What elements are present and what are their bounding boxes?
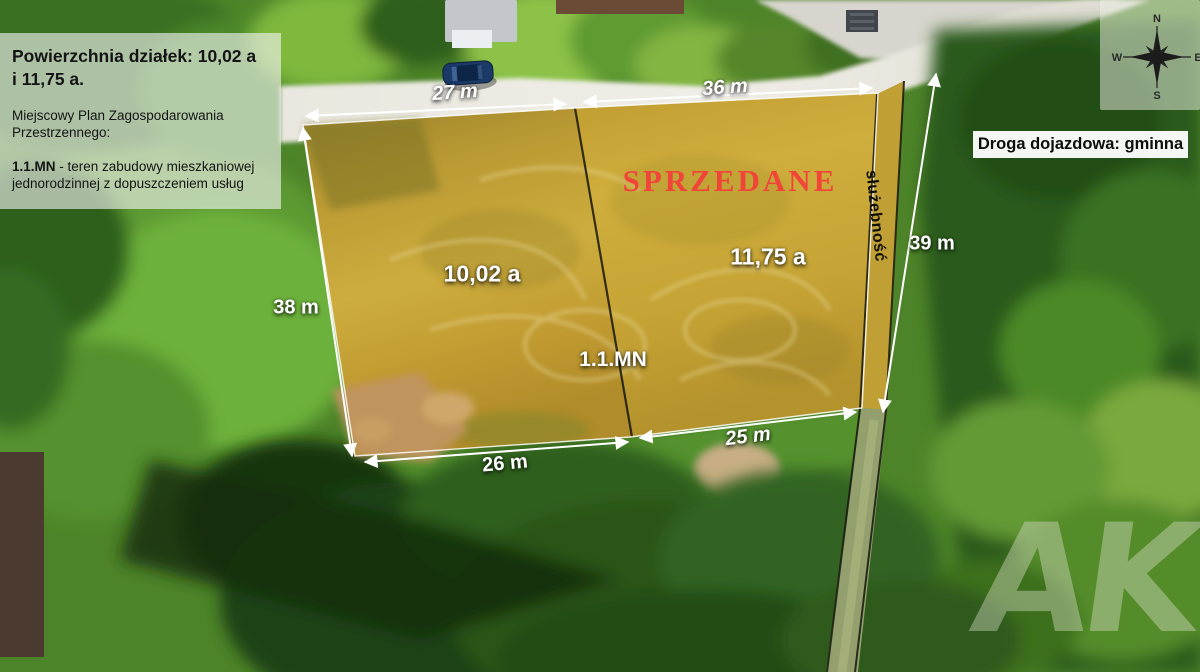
measure-bottom-left: 26 m [481,451,528,478]
zone-line: 1.1.MN - teren zabudowy mieszkaniowej je… [12,158,267,193]
measure-top-left: 27 m [431,80,478,106]
parcel-right-area: 11,75 a [730,244,805,271]
measure-right: 39 m [909,233,955,256]
measure-left: 38 m [273,297,319,320]
plot [303,93,878,462]
parcel-zone-label: 1.1.MN [579,348,647,372]
house-wall [452,30,492,48]
info-box: Powierzchnia działek: 10,02 a i 11,75 a.… [0,33,281,209]
compass-star-icon [1112,12,1200,102]
access-road-label: Droga dojazdowa: gminna [973,131,1188,158]
zone-code: 1.1.MN [12,159,56,174]
compass-rose: N E S W [1112,12,1200,102]
compass-east: E [1194,52,1200,64]
barn-roof-top [556,0,684,14]
area-title-line1: Powierzchnia działek: 10,02 a [12,45,267,68]
sold-status-label: SPRZEDANE [623,163,838,199]
aerial-listing-photo: Powierzchnia działek: 10,02 a i 11,75 a.… [0,0,1200,672]
compass-west: W [1112,52,1122,64]
measure-top-right: 36 m [701,75,748,101]
area-title-line2: i 11,75 a. [12,68,267,91]
barn-roof-bottom-left [0,452,44,657]
agency-watermark: AK [963,498,1200,663]
compass-south: S [1153,90,1160,102]
parcel-left-area: 10,02 a [444,261,521,288]
plan-label: Miejscowy Plan Zagospodarowania Przestrz… [12,107,267,142]
compass-north: N [1153,13,1161,25]
